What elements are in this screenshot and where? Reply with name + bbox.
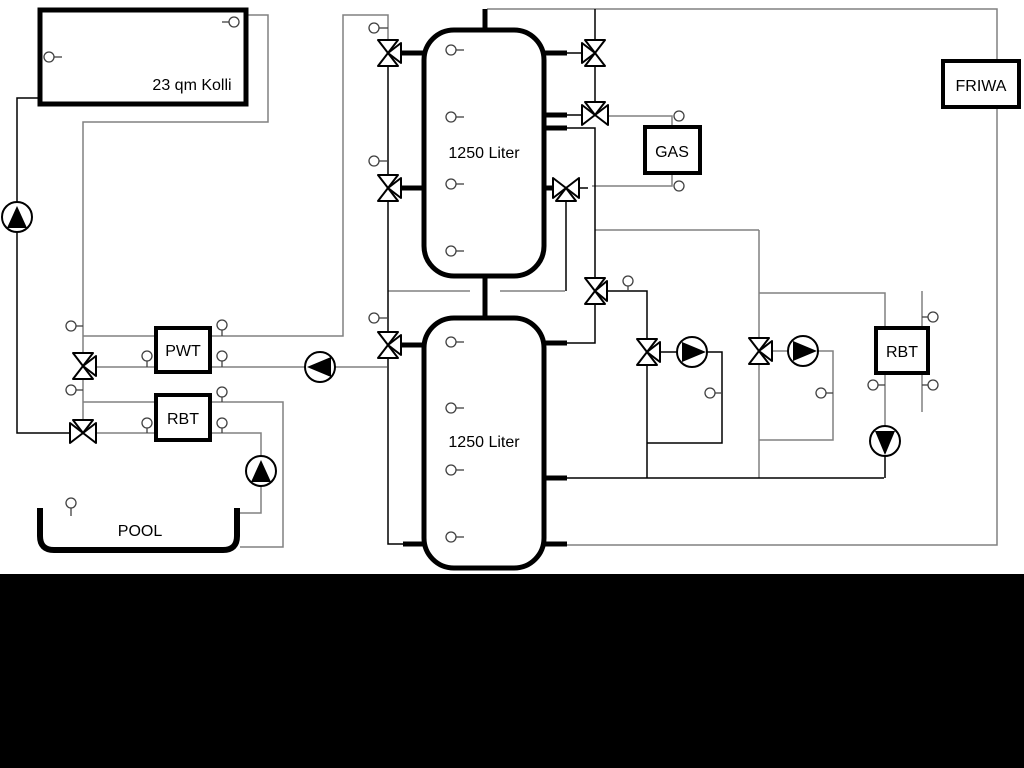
- rbt-right-heat-exchanger: RBT: [876, 328, 928, 373]
- gas-return-valve: [553, 178, 579, 201]
- pwt-secondary-pump: [305, 352, 335, 382]
- pool-label: POOL: [118, 523, 163, 540]
- friwa-station: FRIWA: [943, 61, 1019, 107]
- hydraulic-schematic: 1250 Liter 1250 Liter 23 qm Kolli POOL P…: [0, 0, 1024, 574]
- solar-pump: [2, 202, 32, 232]
- gas-boiler: GAS: [645, 127, 700, 173]
- pwt-heat-exchanger: PWT: [156, 328, 210, 372]
- schematic-screen: 1250 Liter 1250 Liter 23 qm Kolli POOL P…: [0, 0, 1024, 768]
- friwa-circuit-pump: [870, 426, 900, 456]
- rbt-left-label: RBT: [167, 411, 199, 428]
- heating-circuit-1-valve: [637, 339, 660, 365]
- buffer-tank-top-label: 1250 Liter: [448, 145, 520, 162]
- distribution-valve: [585, 278, 607, 304]
- heating-circuit-2-pump: [788, 336, 818, 366]
- pool-pump: [246, 456, 276, 486]
- gas-mid-valve: [582, 102, 608, 125]
- rbt-right-label: RBT: [886, 344, 918, 361]
- buffer-tank-top: 1250 Liter: [424, 30, 544, 276]
- solar-collector: 23 qm Kolli: [40, 10, 246, 104]
- pwt-label: PWT: [165, 343, 201, 360]
- tank1-left-bottom-valve: [378, 175, 401, 201]
- pool: POOL: [40, 508, 237, 550]
- buffer-tank-bottom: 1250 Liter: [424, 318, 544, 568]
- rbt-left-heat-exchanger: RBT: [156, 395, 210, 440]
- heating-circuit-1-pump: [677, 337, 707, 367]
- solar-mixing-valve: [73, 353, 96, 379]
- pool-mixing-valve: [70, 420, 96, 443]
- gas-top-valve: [582, 40, 605, 66]
- buffer-tank-bottom-label: 1250 Liter: [448, 434, 520, 451]
- tank2-left-valve: [378, 332, 401, 358]
- heating-circuit-2-valve: [749, 338, 772, 364]
- bottom-black-band: [0, 574, 1024, 768]
- tank1-left-top-valve: [378, 40, 401, 66]
- gas-label: GAS: [655, 144, 689, 161]
- solar-collector-label: 23 qm Kolli: [152, 77, 231, 94]
- friwa-label: FRIWA: [956, 78, 1007, 95]
